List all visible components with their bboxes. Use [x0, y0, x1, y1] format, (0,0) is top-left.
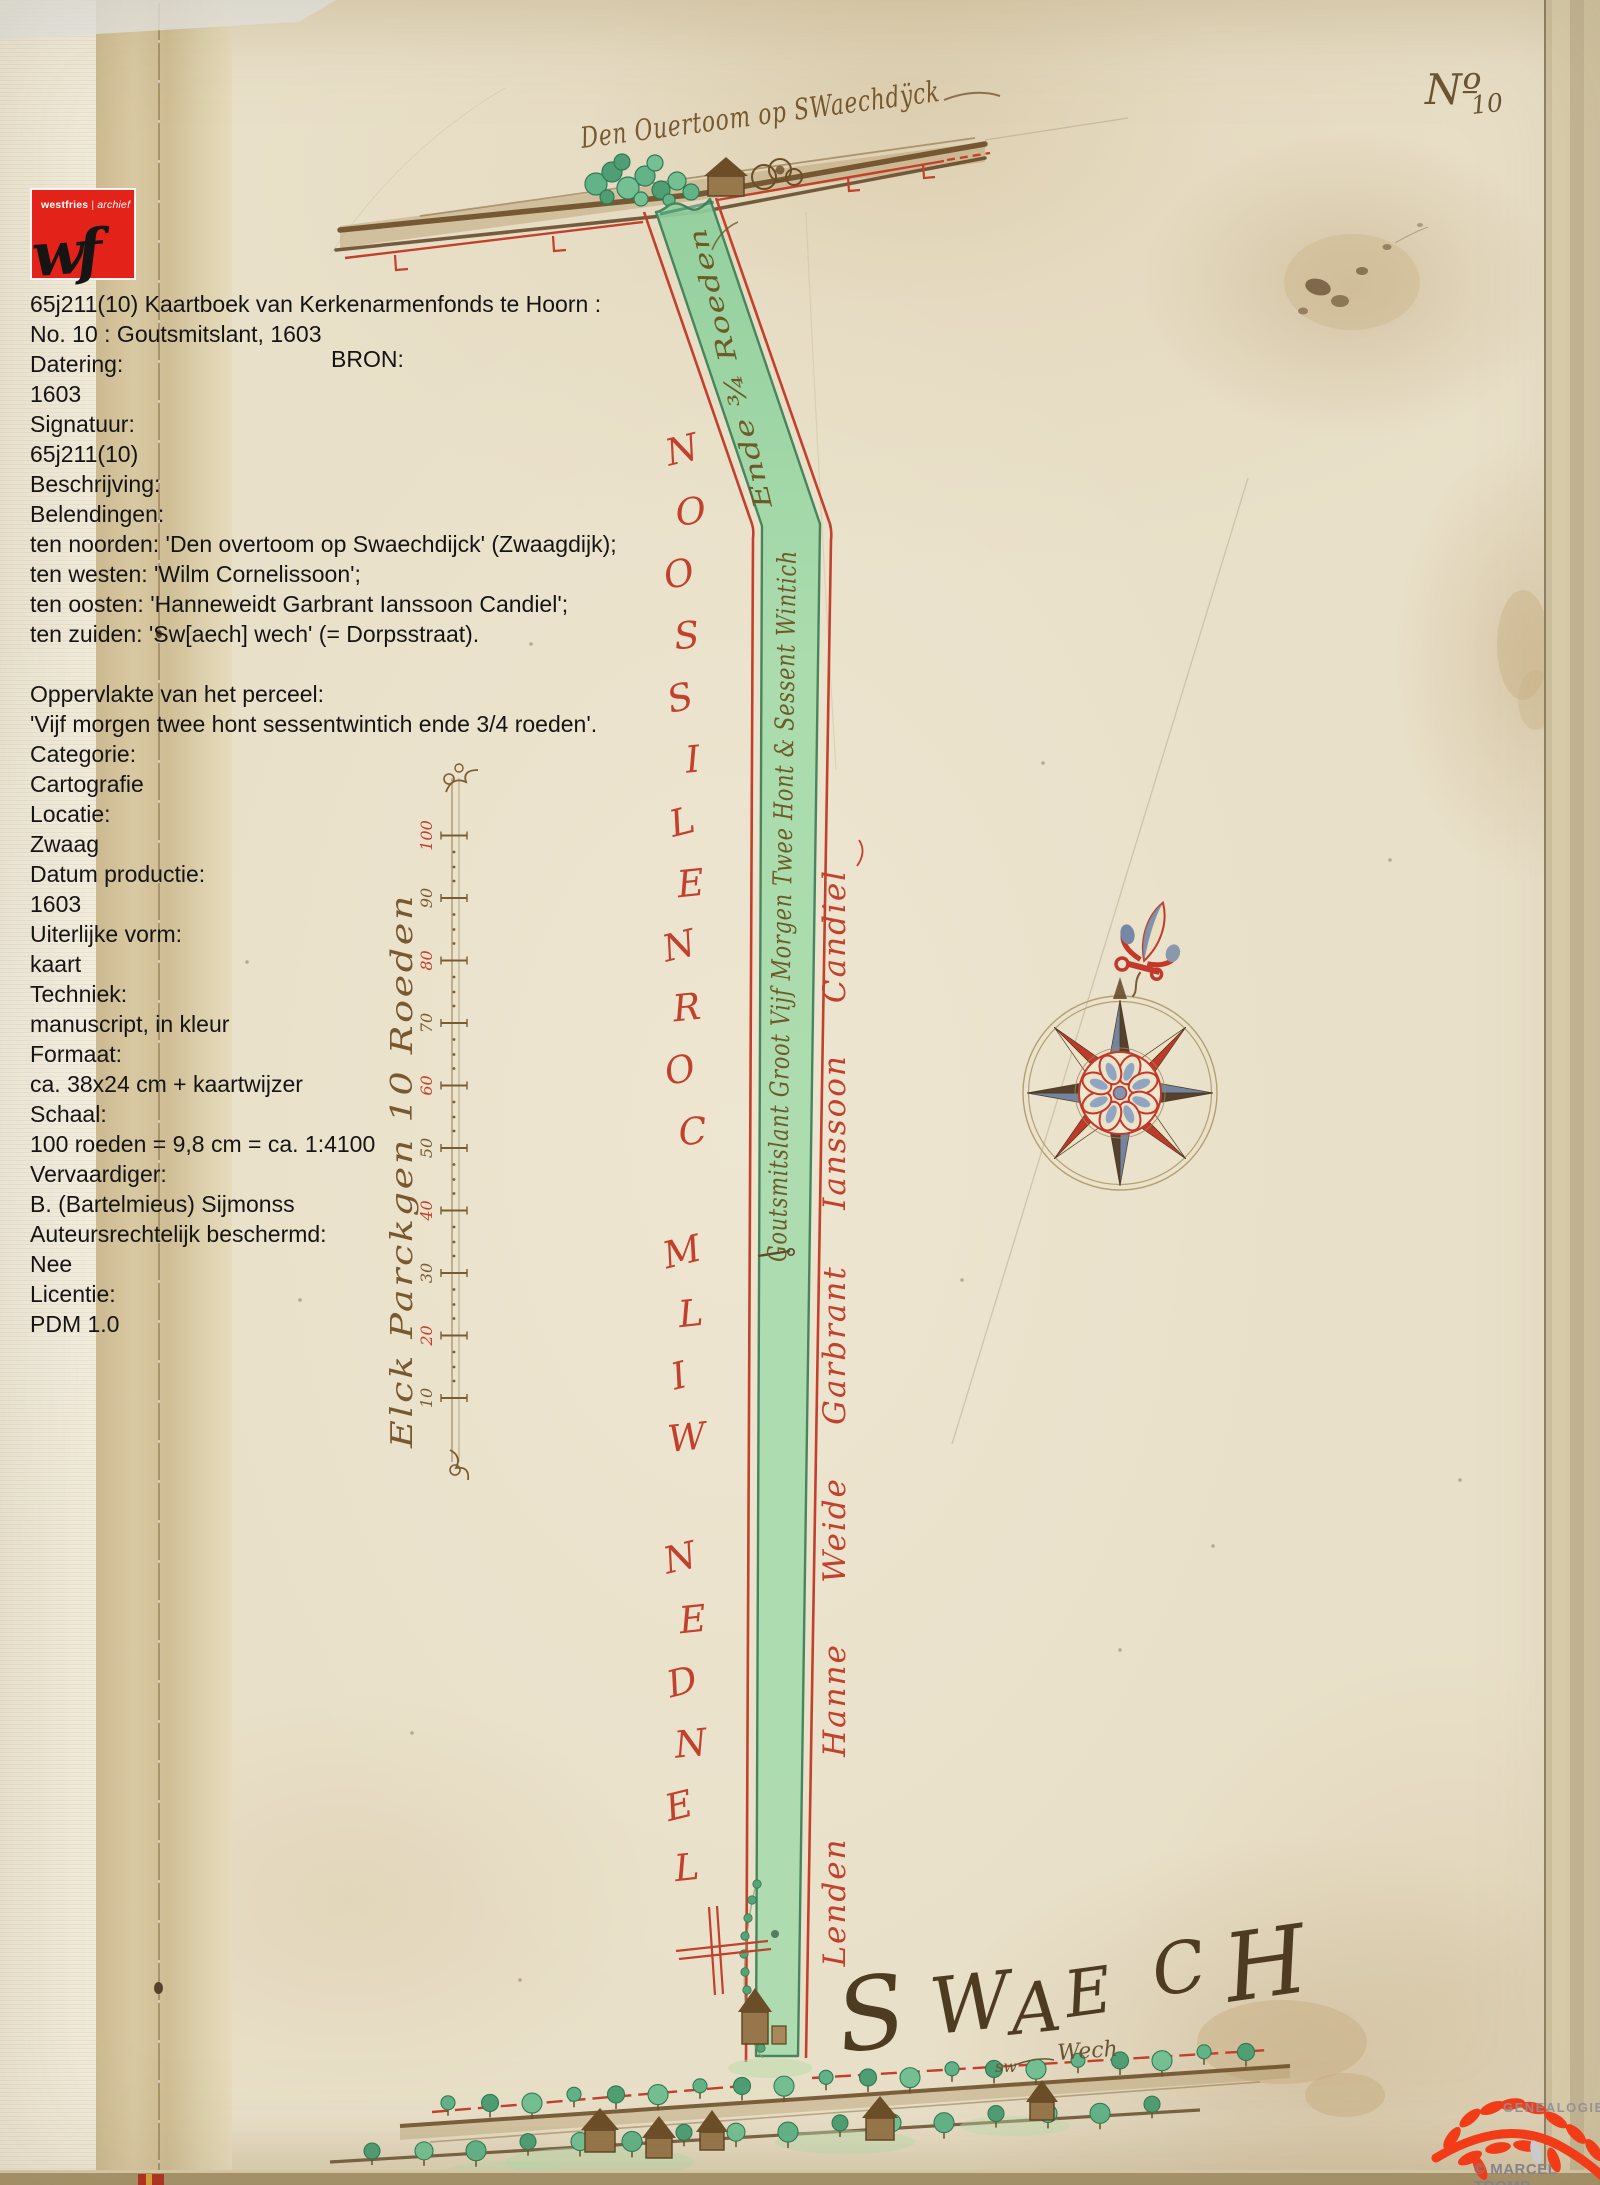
info-line: Vervaardiger: [30, 1159, 680, 1189]
info-line: PDM 1.0 [30, 1309, 680, 1339]
info-line: 65j211(10) [30, 439, 680, 469]
info-line: Zwaag [30, 829, 680, 859]
info-line: B. (Bartelmieus) Sijmonss [30, 1189, 680, 1219]
info-line: Oppervlakte van het perceel: [30, 679, 680, 709]
east-word: Candiel [817, 869, 853, 1003]
info-line: No. 10 : Goutsmitslant, 1603 [30, 319, 680, 349]
house-icon [646, 2138, 672, 2158]
logo-brand: westfries [41, 199, 88, 211]
east-word: Ianssoon [817, 1054, 853, 1211]
west-letter: E [660, 1782, 698, 1831]
west-letter: E [676, 1597, 708, 1643]
house-icon [700, 2132, 724, 2150]
westfries-archief-logo: westfries|archief wf [30, 188, 136, 280]
east-word: Weide [817, 1477, 853, 1583]
info-line: 'Vijf morgen twee hont sessentwintich en… [30, 709, 680, 739]
west-letter: I [666, 1353, 693, 1399]
east-word: Hanne [817, 1643, 853, 1758]
farmhouse-icon [742, 2012, 768, 2044]
west-letter: C [676, 1109, 709, 1155]
info-line: Licentie: [30, 1279, 680, 1309]
west-letter: I [682, 737, 703, 782]
logo-dept: archief [97, 199, 130, 211]
headband-stitch [138, 2174, 164, 2185]
map-title: Den Ouertoom op SWaechdÿck [578, 74, 942, 155]
dike-road-north [336, 138, 990, 270]
info-line: Signatuur: [30, 409, 680, 439]
farmhouse-roof [704, 157, 748, 176]
info-line: ten oosten: 'Hanneweidt Garbrant Ianssoo… [30, 589, 680, 619]
village-letter: S [829, 1951, 913, 2076]
info-line: 1603 [30, 889, 680, 919]
sheet-number: Nº 10 [1424, 65, 1504, 120]
info-line: ten zuiden: 'Sw[aech] wech' (= Dorpsstra… [30, 619, 680, 649]
info-line: Uiterlijke vorm: [30, 919, 680, 949]
village-letter: E [1059, 1953, 1117, 2033]
logo-brand-text: westfries|archief [41, 199, 130, 211]
village-road-south: sw Wech [330, 2037, 1290, 2183]
logo-monogram: wf [30, 222, 97, 286]
house-icon [585, 2130, 615, 2152]
info-line: manuscript, in kleur [30, 1009, 680, 1039]
east-word: Lenden [817, 1837, 853, 1967]
archive-scan-page: Elck Parckgen 10 Roeden 1020304050607080… [0, 0, 1600, 2185]
scale-number: 10 [417, 1388, 436, 1408]
house-icon [866, 2118, 894, 2140]
info-line: Beschrijving: [30, 469, 680, 499]
watermark-credit: © MARCEL TROMP [1474, 2161, 1600, 2185]
catalog-metadata: 65j211(10) Kaartboek van Kerkenarmenfond… [30, 289, 680, 1339]
logo-divider: | [88, 199, 97, 211]
info-line: Locatie: [30, 799, 680, 829]
bottom-book-edge [0, 2168, 1600, 2185]
sheet-number-value: 10 [1470, 88, 1505, 120]
info-line: ca. 38x24 cm + kaartwijzer [30, 1069, 680, 1099]
info-line: Categorie: [30, 739, 680, 769]
info-line: kaart [30, 949, 680, 979]
farmhouse-icon [708, 176, 744, 196]
info-line: Belendingen: [30, 499, 680, 529]
info-line: ten westen: 'Wilm Cornelissoon'; [30, 559, 680, 589]
compass-rose [1023, 892, 1217, 1190]
village-letter: C [1145, 1923, 1212, 2013]
road-label: Wech [1057, 2037, 1119, 2066]
info-line: 1603 [30, 379, 680, 409]
west-letter: W [666, 1414, 711, 1461]
road-label-small: sw [995, 2057, 1017, 2076]
west-letter: N [671, 1720, 710, 1766]
info-line: Nee [30, 1249, 680, 1279]
info-line: Formaat: [30, 1039, 680, 1069]
west-letter: L [671, 1845, 701, 1890]
info-line: Techniek: [30, 979, 680, 1009]
watermark-name: GENEALOGIEN [1503, 2100, 1600, 2115]
info-line: 100 roeden = 9,8 cm = ca. 1:4100 [30, 1129, 680, 1159]
east-word: Garbrant [817, 1265, 853, 1425]
info-line: Schaal: [30, 1099, 680, 1129]
house-icon [1030, 2102, 1054, 2120]
info-line: ten noorden: 'Den overtoom op Swaechdijc… [30, 529, 680, 559]
source-label: BRON: [331, 346, 404, 373]
info-line: 65j211(10) Kaartboek van Kerkenarmenfond… [30, 289, 680, 319]
info-line [30, 649, 680, 679]
info-line: Datum productie: [30, 859, 680, 889]
village-letter: H [1215, 1905, 1315, 2025]
info-line: Cartografie [30, 769, 680, 799]
info-line: Auteursrechtelijk beschermd: [30, 1219, 680, 1249]
west-letter: D [661, 1657, 701, 1706]
fleur-de-lis-icon [1099, 892, 1193, 1007]
west-letter: N [658, 1533, 702, 1583]
right-page-edge [1544, 0, 1600, 2185]
